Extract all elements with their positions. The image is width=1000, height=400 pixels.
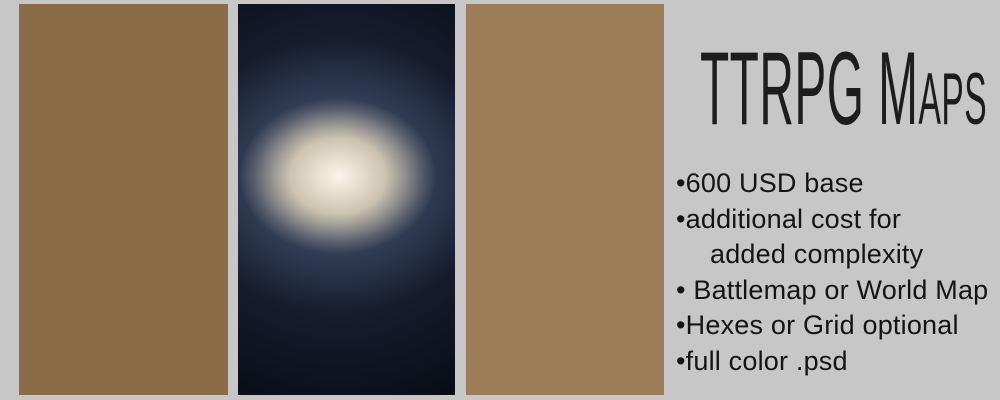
pricing-bullet-line: •Hexes or Grid optional xyxy=(676,308,1000,344)
galaxy-star-map-art xyxy=(238,4,455,154)
poster-title: TTRPG Maps xyxy=(700,30,985,149)
pricing-bullet-line: •600 USD base xyxy=(676,166,1000,202)
ttrpg-maps-poster: TTRPG Maps •600 USD base•additional cost… xyxy=(0,0,1000,400)
pricing-bullet-line: • Battlemap or World Map xyxy=(676,273,1000,309)
hex-battlemap-art xyxy=(466,4,664,154)
galaxy-star-map-panel xyxy=(238,4,455,395)
pricing-bullet-line: •full color .psd xyxy=(676,344,1000,380)
pricing-bullet-list: •600 USD base•additional cost foradded c… xyxy=(676,166,1000,380)
pricing-bullet-line: added complexity xyxy=(676,237,1000,273)
fantasy-world-map-art xyxy=(19,4,228,395)
fantasy-world-map-panel xyxy=(19,4,228,395)
hex-battlemap-panel xyxy=(466,4,664,395)
pricing-bullet-line: •additional cost for xyxy=(676,202,1000,238)
